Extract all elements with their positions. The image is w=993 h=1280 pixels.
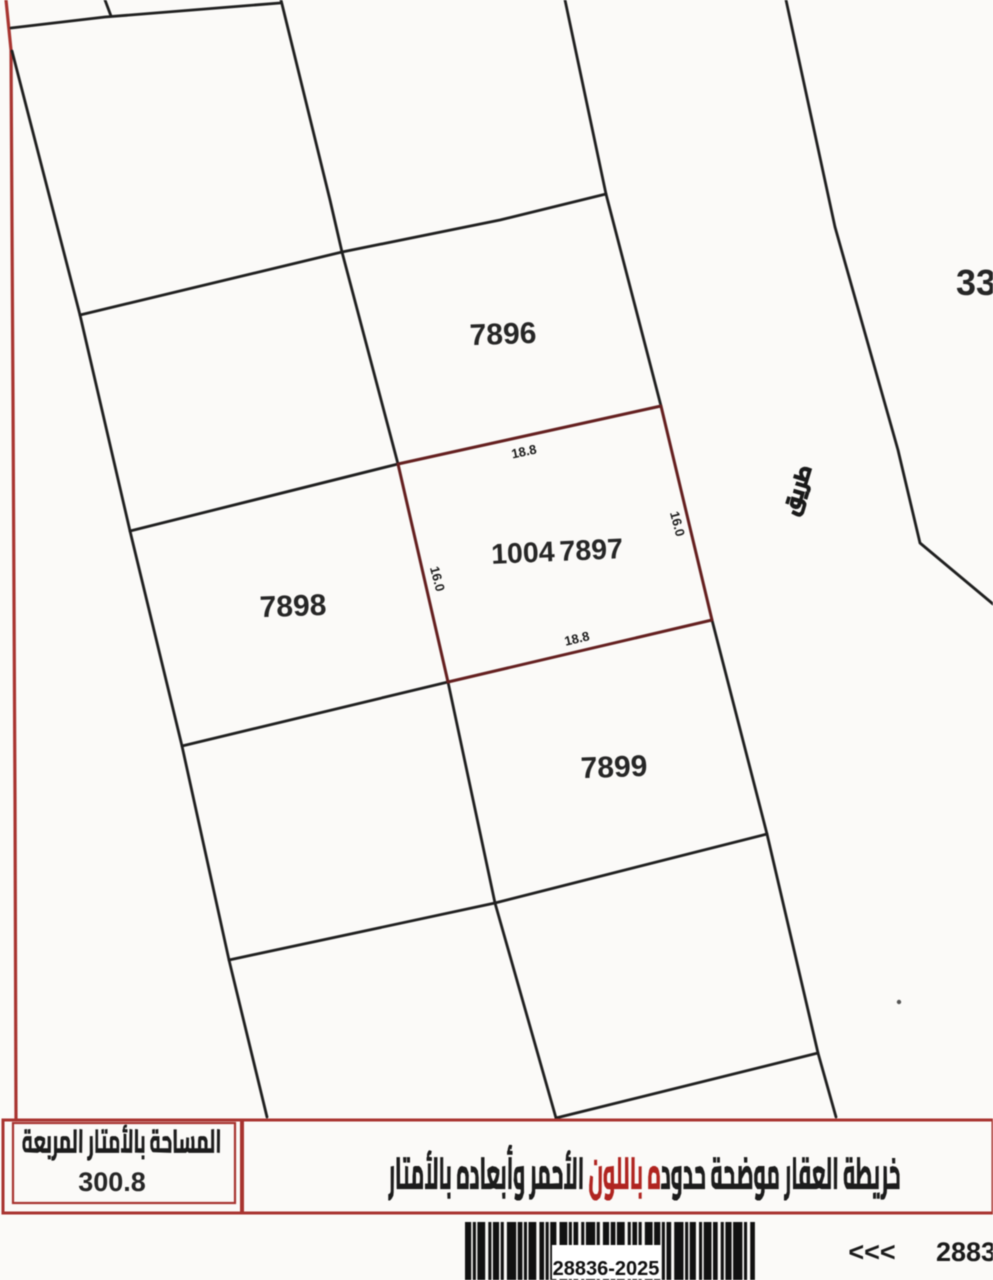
svg-text:335: 335 — [956, 262, 993, 303]
svg-text:16.0: 16.0 — [667, 510, 688, 538]
svg-text:10047897: 10047897 — [491, 533, 624, 571]
svg-text:7896: 7896 — [469, 317, 537, 352]
svg-text:16.0: 16.0 — [427, 565, 448, 593]
svg-text:18.8: 18.8 — [563, 628, 591, 648]
svg-text:28836-2025: 28836-2025 — [553, 1258, 660, 1280]
svg-text:7898: 7898 — [259, 589, 327, 624]
svg-text:18.8: 18.8 — [510, 442, 538, 462]
svg-text:300.8: 300.8 — [78, 1167, 146, 1197]
svg-text:7899: 7899 — [580, 750, 648, 785]
svg-text:<<<: <<< — [848, 1237, 895, 1267]
svg-text:2883: 2883 — [936, 1237, 993, 1267]
